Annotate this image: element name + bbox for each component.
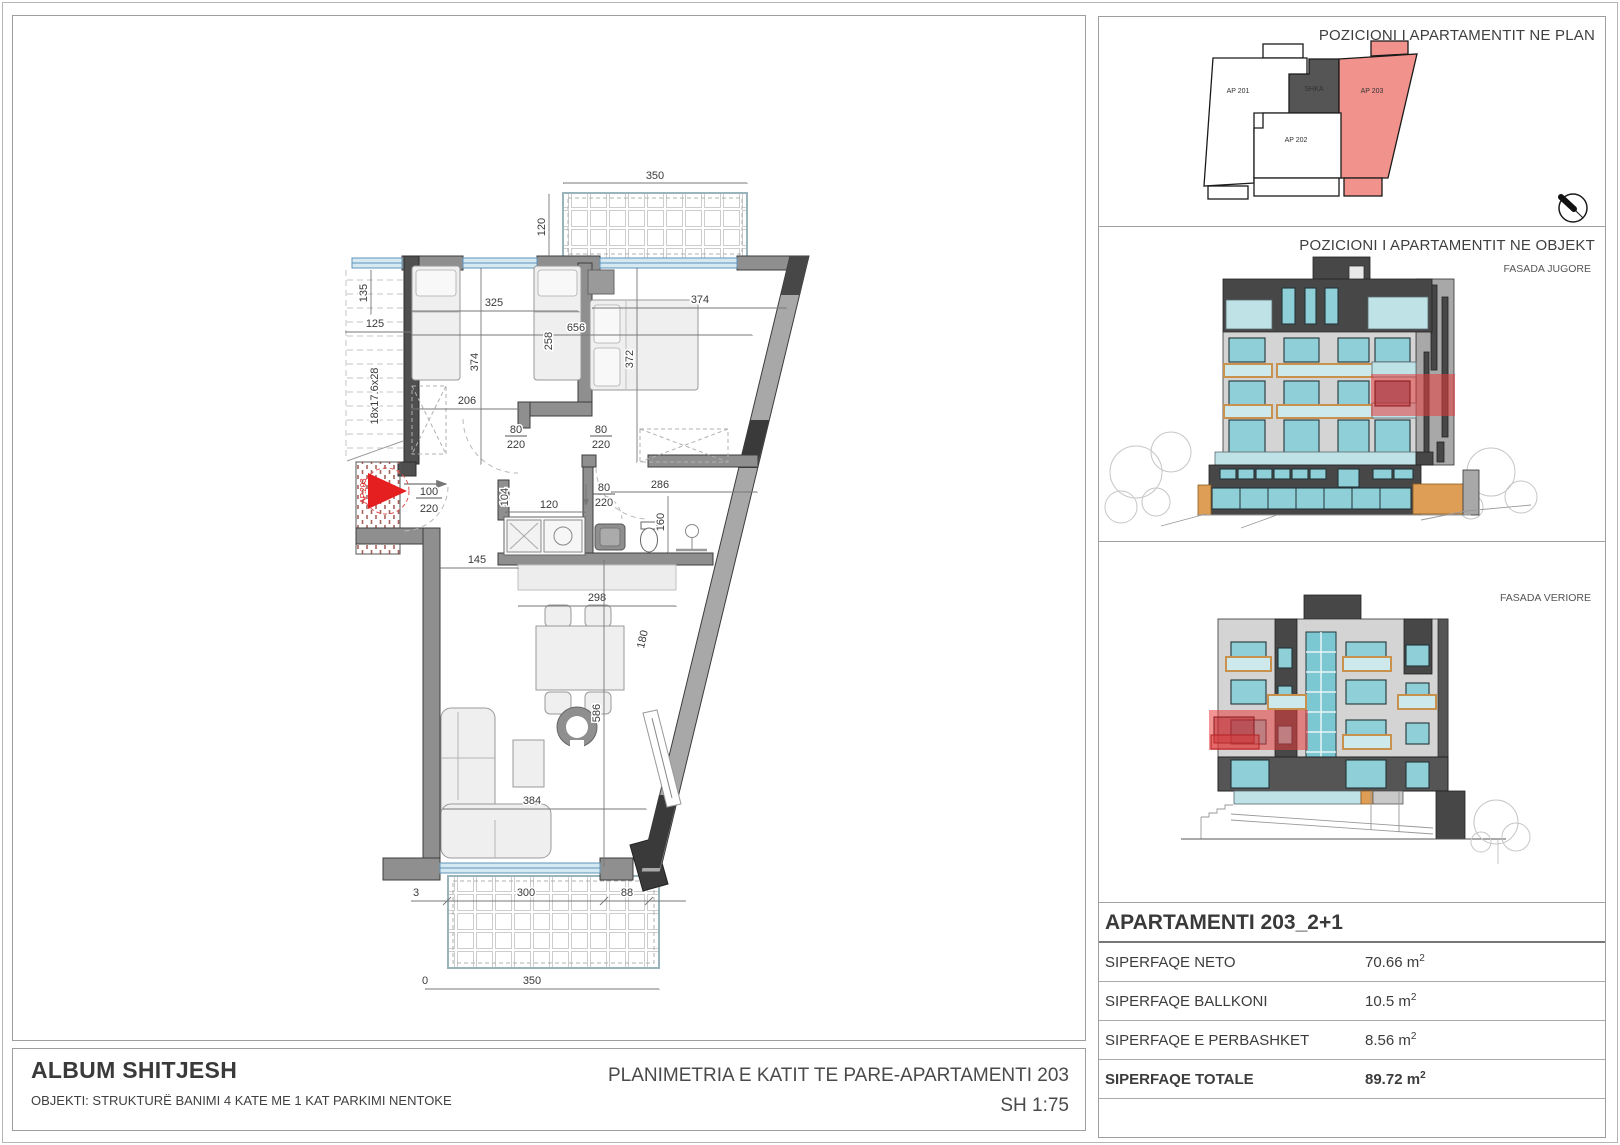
title-block: ALBUM SHITJESH OBJEKTI: STRUKTURË BANIMI… <box>12 1048 1086 1131</box>
north-compass-icon <box>1559 194 1587 222</box>
bedroom1-furniture <box>412 266 581 454</box>
section-fasada-jugore: POZICIONI I APARTAMENTIT NE OBJEKT FASAD… <box>1099 226 1605 541</box>
section-area-table: APARTAMENTI 203_2+1 SIPERFAQE NETO 70.66… <box>1099 902 1605 1137</box>
dim-label: 3 <box>413 887 419 899</box>
mini-ap203 <box>1339 54 1417 178</box>
drawing-scale: SH 1:75 <box>608 1091 1069 1121</box>
dim-label: 325 <box>485 297 503 309</box>
dim-label: 286 <box>651 479 669 491</box>
door-label-entry: 100 220 <box>416 486 442 515</box>
dim-label: 298 <box>588 592 606 604</box>
svg-text:80: 80 <box>510 424 522 436</box>
section-position-plan: POZICIONI I APARTAMENTIT NE PLAN AP 201 … <box>1099 17 1605 226</box>
row-label: SIPERFAQE E PERBASHKET <box>1099 1032 1361 1049</box>
row-label: SIPERFAQE TOTALE <box>1099 1071 1361 1088</box>
dim-label: 104 <box>499 488 511 506</box>
row-value: 70.66 m2 <box>1361 953 1425 971</box>
dim-label: 300 <box>517 887 535 899</box>
sheet: 18x17.6x28 <box>0 0 1620 1145</box>
album-title: ALBUM SHITJESH <box>31 1057 452 1084</box>
fasada-jugore-drawing <box>1099 227 1605 541</box>
section-fasada-veriore: FASADA VERIORE <box>1099 541 1605 902</box>
roof-block <box>1304 595 1361 619</box>
right-panel: POZICIONI I APARTAMENTIT NE PLAN AP 201 … <box>1098 16 1606 1138</box>
bathroom-fixtures <box>595 522 707 552</box>
storefront-glass <box>1212 469 1413 509</box>
dim-label: 160 <box>655 513 667 531</box>
dim-label: 384 <box>523 795 541 807</box>
dim-label: 656 <box>567 322 585 334</box>
dim-label: 135 <box>358 284 370 302</box>
dim-label: 374 <box>469 353 481 371</box>
staircase: 18x17.6x28 <box>346 270 403 461</box>
door-label-bed2: 80 220 <box>590 424 612 451</box>
row-value: 10.5 m2 <box>1361 992 1416 1010</box>
dim-label: 206 <box>458 395 476 407</box>
fasada-veriore-drawing <box>1099 542 1605 902</box>
table-row-total: SIPERFAQE TOTALE 89.72 m2 <box>1099 1060 1605 1099</box>
dim-label: 88 <box>621 887 633 899</box>
apartment-highlight <box>1209 710 1308 750</box>
row-value: 89.72 m2 <box>1361 1070 1426 1088</box>
stair-note: 18x17.6x28 <box>369 368 381 425</box>
dim-label: 180 <box>635 629 651 650</box>
mini-label-ap202: AP 202 <box>1285 137 1308 144</box>
dim-label: 372 <box>624 350 636 368</box>
svg-text:220: 220 <box>595 497 613 509</box>
svg-text:80: 80 <box>595 424 607 436</box>
row-label: SIPERFAQE BALLKONI <box>1099 993 1361 1010</box>
apartment-title: APARTAMENTI 203_2+1 <box>1099 903 1605 943</box>
svg-text:220: 220 <box>507 439 525 451</box>
mini-label-ap201: AP 201 <box>1227 88 1250 95</box>
mini-plan-drawing: AP 201 SHKA AP 203 AP 202 <box>1099 17 1605 226</box>
dining-table <box>536 626 624 690</box>
dim-label: 258 <box>543 332 555 350</box>
drawing-title: PLANIMETRIA E KATIT TE PARE-APARTAMENTI … <box>608 1061 1069 1091</box>
dim-label: 0 <box>422 975 428 987</box>
dim-label: 586 <box>591 704 603 722</box>
svg-text:220: 220 <box>420 503 438 515</box>
dim-label: 350 <box>646 170 664 182</box>
dim-label: 350 <box>523 975 541 987</box>
svg-text:100: 100 <box>420 486 438 498</box>
dim-label: 145 <box>468 554 486 566</box>
mini-label-shkalla: SHKA <box>1304 86 1323 93</box>
entry-stamp: AP.203 <box>359 478 368 504</box>
table-row: SIPERFAQE BALLKONI 10.5 m2 <box>1099 982 1605 1021</box>
object-description: OBJEKTI: STRUKTURË BANIMI 4 KATE ME 1 KA… <box>31 1093 452 1108</box>
mini-label-ap203: AP 203 <box>1361 88 1384 95</box>
svg-text:220: 220 <box>592 439 610 451</box>
north-balcony <box>563 193 747 259</box>
row-value: 8.56 m2 <box>1361 1031 1416 1049</box>
svg-text:80: 80 <box>598 482 610 494</box>
row-label: SIPERFAQE NETO <box>1099 954 1361 971</box>
dim-label: 125 <box>366 318 384 330</box>
table-row: SIPERFAQE NETO 70.66 m2 <box>1099 943 1605 982</box>
dim-label: 120 <box>536 218 548 236</box>
coffee-table <box>513 740 544 787</box>
mini-ap202 <box>1254 113 1341 178</box>
kitchen <box>504 517 585 555</box>
tree-sketch <box>1471 800 1530 864</box>
dim-label: 120 <box>540 499 558 511</box>
table-row: SIPERFAQE E PERBASHKET 8.56 m2 <box>1099 1021 1605 1060</box>
floor-plan-drawing: 18x17.6x28 <box>0 0 1086 1045</box>
dim-label: 374 <box>691 294 709 306</box>
